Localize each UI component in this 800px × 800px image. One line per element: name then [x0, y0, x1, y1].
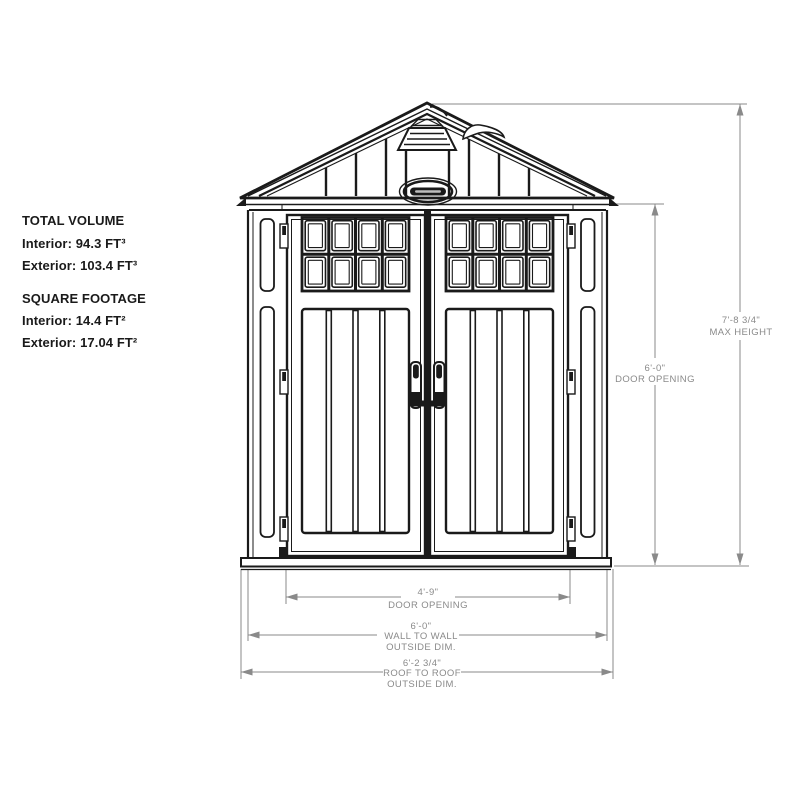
hinge: [567, 370, 575, 394]
line-drawing: 6'-0" DOOR OPENING 7'-8 3/4" MAX HEIGHT …: [0, 0, 800, 800]
astragal: [424, 209, 431, 562]
dim-max-height: 7'-8 3/4" MAX HEIGHT: [709, 104, 772, 565]
right-door: [430, 215, 568, 556]
dim-door-height: 6'-0" DOOR OPENING: [615, 204, 695, 565]
door-width-label: DOOR OPENING: [388, 600, 468, 611]
right-door-bolt: [569, 547, 576, 558]
hinge: [280, 517, 288, 541]
hinge: [567, 517, 575, 541]
hinge: [280, 224, 288, 248]
shed-front-elevation: [236, 103, 619, 570]
right-upper-trim: [581, 219, 595, 291]
base-plate: [241, 558, 611, 567]
dim-roof-width: 6'-2 3/4" ROOF TO ROOF OUTSIDE DIM.: [241, 658, 613, 690]
door-width-value: 4'-9": [418, 587, 439, 598]
max-height-value: 7'-8 3/4": [722, 315, 760, 326]
left-door: [287, 215, 425, 556]
right-lower-trim: [581, 307, 595, 537]
left-lower-trim: [261, 307, 275, 537]
roof-inner-line: [248, 109, 606, 196]
roof-width-label1: ROOF TO ROOF: [383, 668, 461, 679]
dim-wall-width: 6'-0" WALL TO WALL OUTSIDE DIM.: [248, 621, 607, 653]
gable-border-outer: [259, 114, 595, 196]
dim-door-width: 4'-9" DOOR OPENING: [286, 587, 570, 611]
door-height-value: 6'-0": [645, 363, 666, 374]
hinge: [567, 224, 575, 248]
roof-width-label2: OUTSIDE DIM.: [387, 679, 457, 690]
hinge: [280, 370, 288, 394]
wall-width-label1: WALL TO WALL: [384, 631, 458, 642]
gable-border-inner: [267, 119, 587, 196]
door-height-label: DOOR OPENING: [615, 374, 695, 385]
left-upper-trim: [261, 219, 275, 291]
wall-width-label2: OUTSIDE DIM.: [386, 642, 456, 653]
left-door-bolt: [279, 547, 286, 558]
max-height-label: MAX HEIGHT: [709, 327, 772, 338]
shed-dimension-diagram: TOTAL VOLUME Interior: 94.3 FT³ Exterior…: [0, 0, 800, 800]
